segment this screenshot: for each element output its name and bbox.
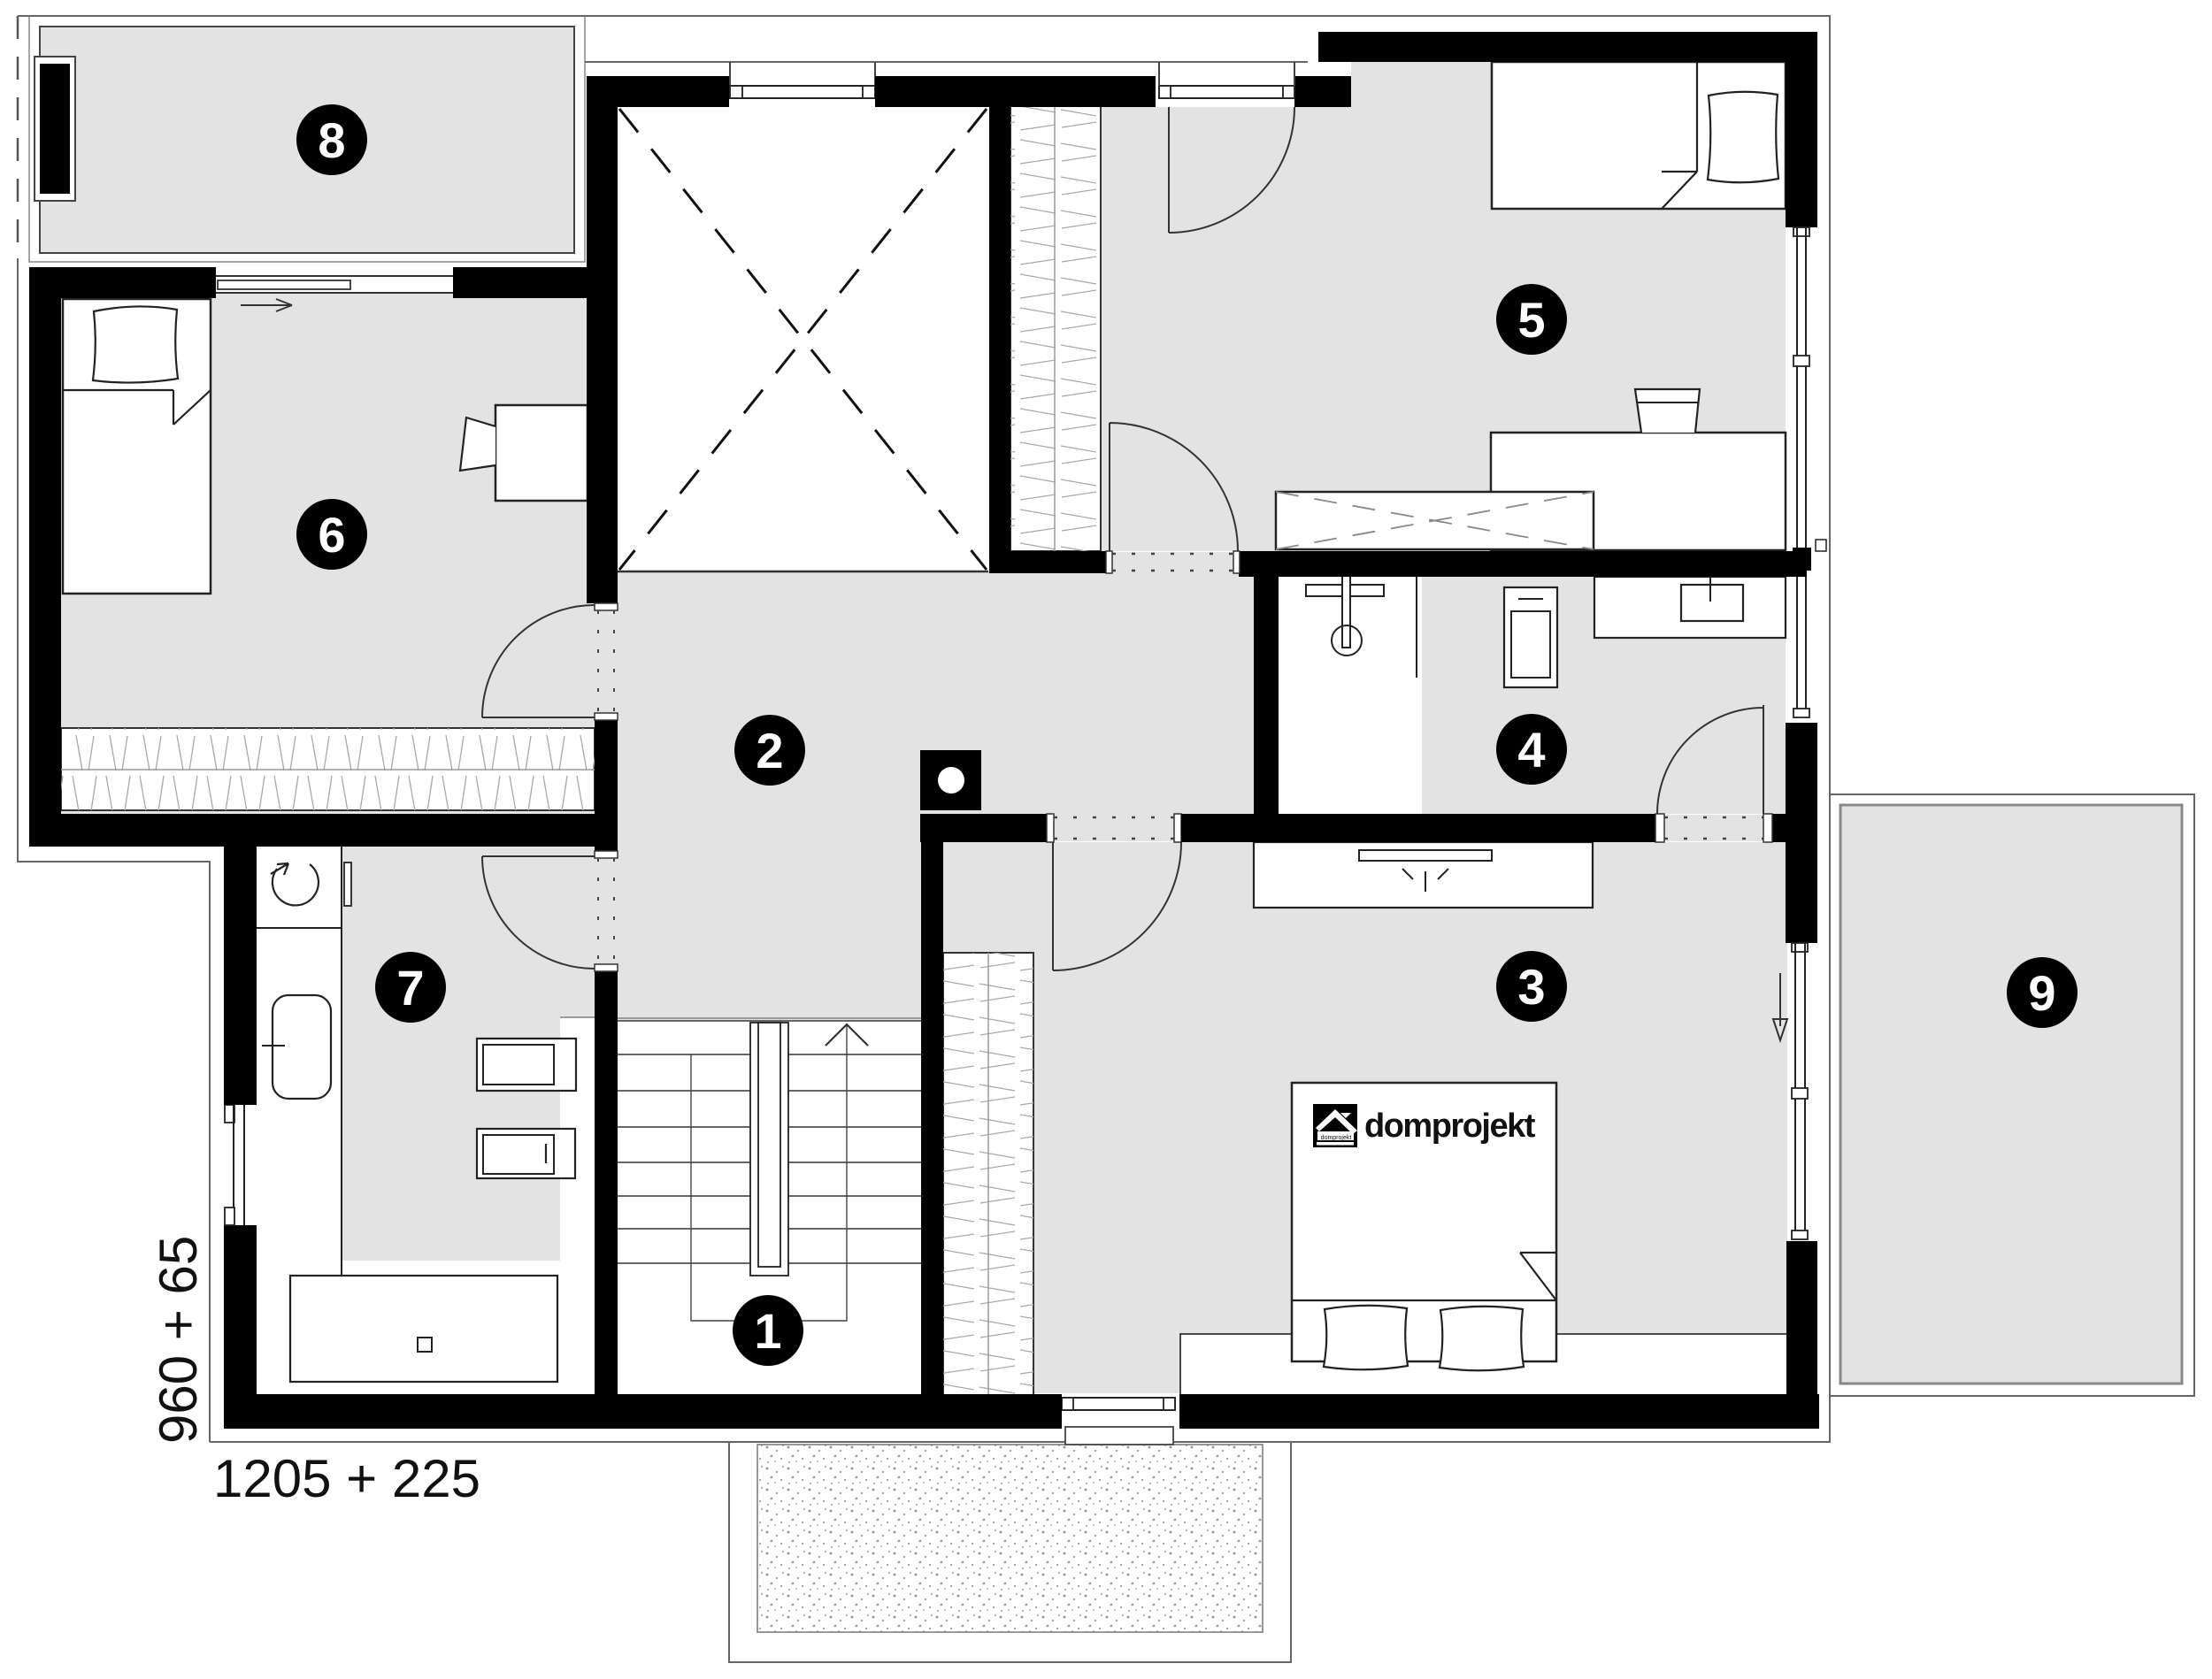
svg-text:1: 1: [754, 1303, 781, 1359]
svg-text:960 + 65: 960 + 65: [149, 1236, 208, 1444]
svg-text:3: 3: [1517, 959, 1545, 1015]
svg-text:9: 9: [2028, 965, 2055, 1021]
svg-text:4: 4: [1517, 722, 1545, 778]
svg-text:domprojekt: domprojekt: [1364, 1108, 1536, 1145]
svg-text:8: 8: [318, 112, 345, 168]
svg-text:7: 7: [396, 960, 424, 1016]
svg-text:5: 5: [1517, 292, 1545, 348]
svg-text:1205 + 225: 1205 + 225: [213, 1449, 480, 1508]
svg-text:6: 6: [318, 507, 345, 563]
svg-text:2: 2: [756, 723, 783, 778]
svg-text:domprojekt: domprojekt: [1321, 1135, 1352, 1141]
